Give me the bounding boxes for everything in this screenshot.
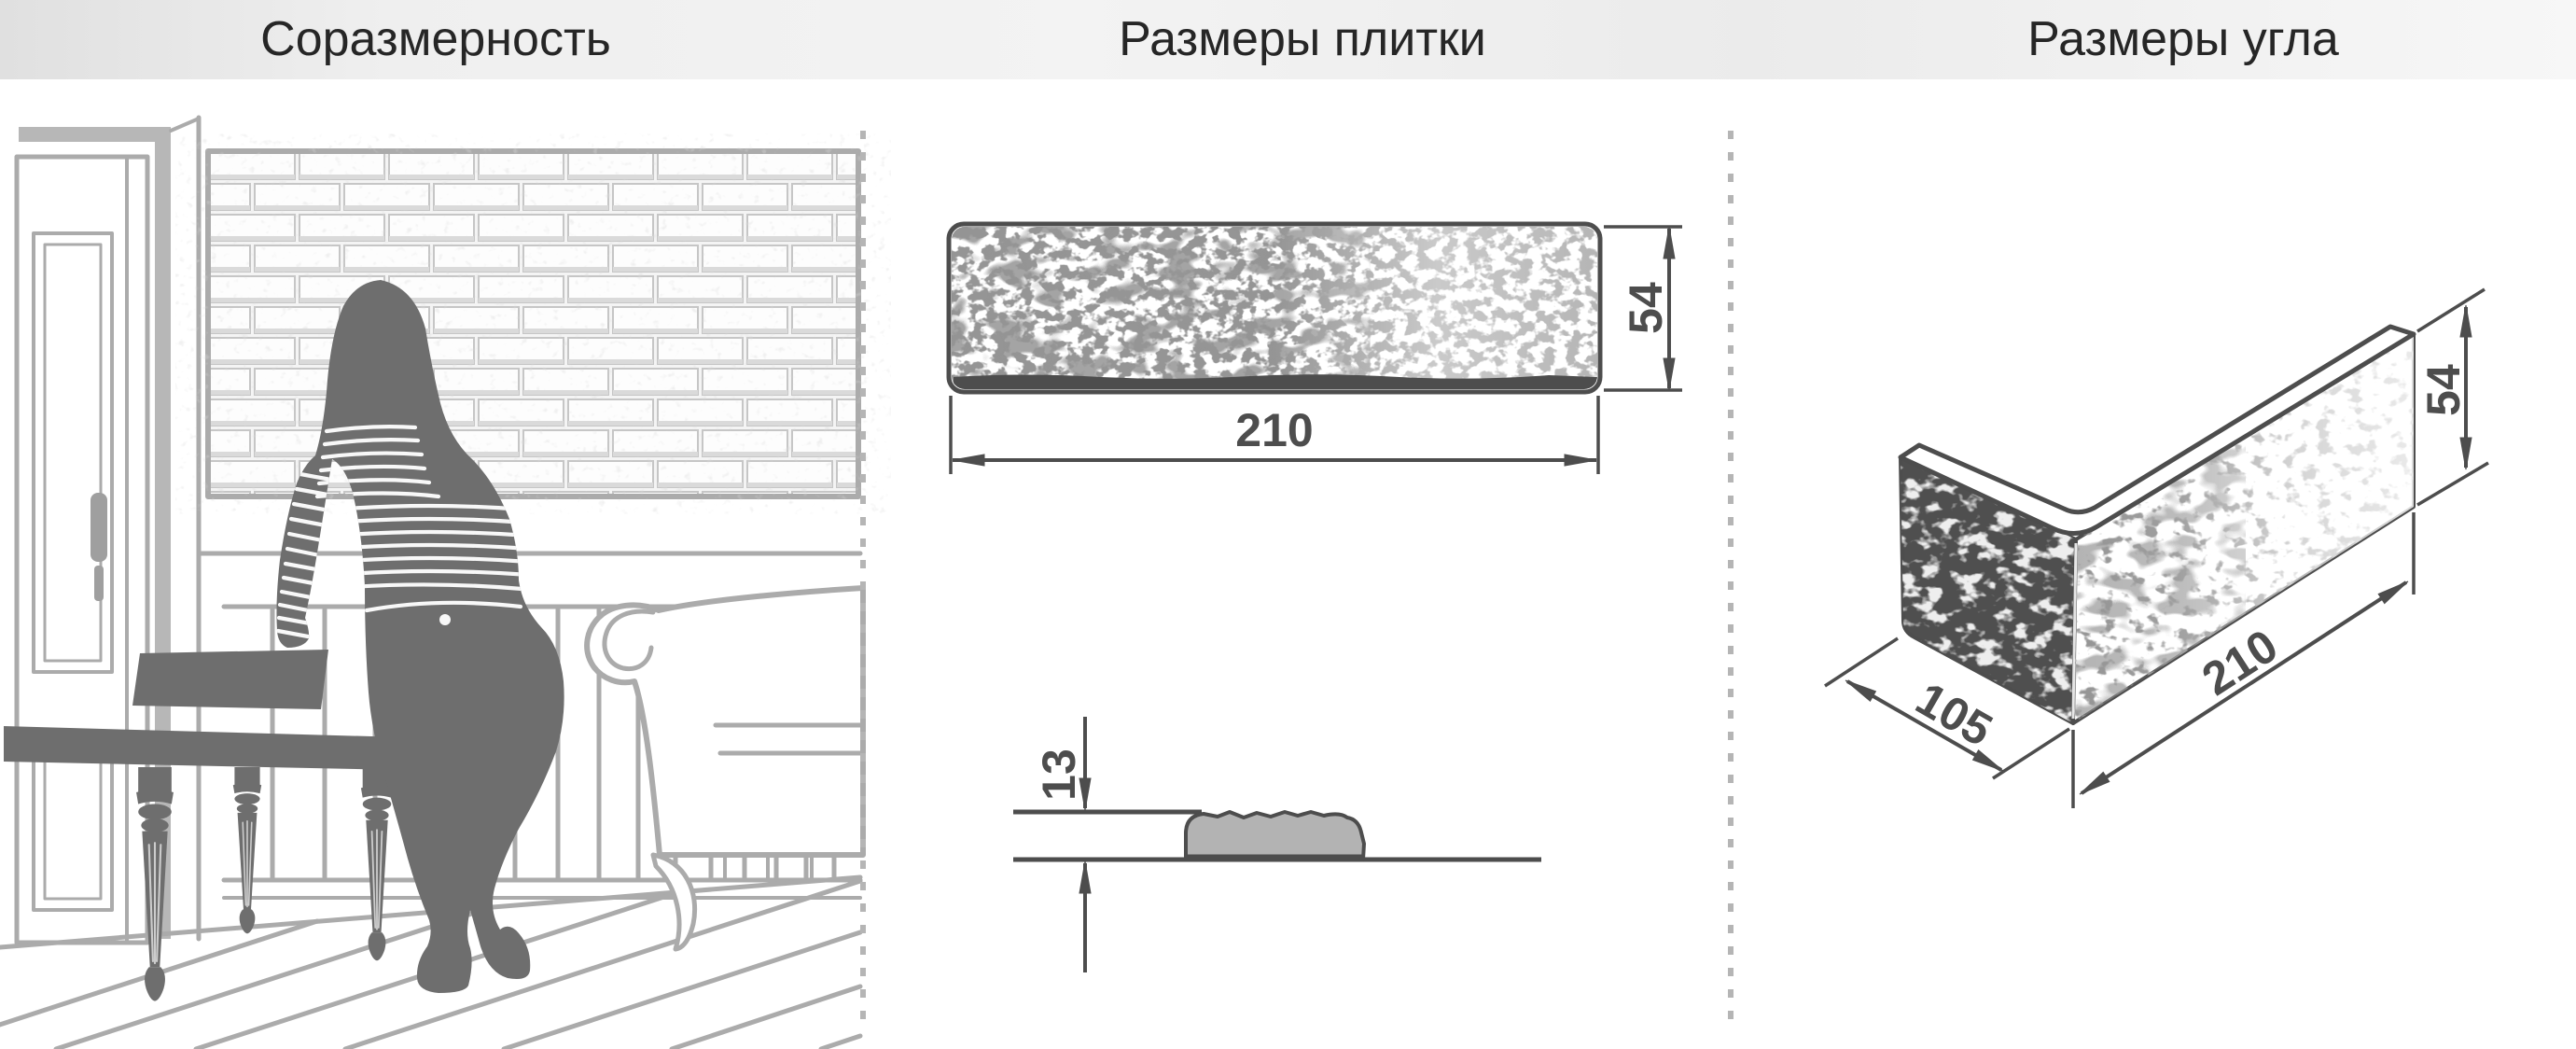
corner-isometric-view (1894, 327, 2419, 728)
tile-height-value: 54 (1620, 282, 1672, 334)
corner-short-side-value: 105 (1907, 672, 2000, 756)
door (17, 118, 199, 943)
tile-length-value: 210 (1235, 404, 1313, 456)
figure-canvas: 210 54 13 105 210 54 (0, 0, 2576, 1049)
proportionality-illustration (0, 118, 863, 1049)
laptop (132, 650, 328, 709)
product-dimensions-figure: Соразмерность Размеры плитки Размеры угл… (0, 0, 2576, 1049)
corner-height-value: 54 (2417, 364, 2470, 416)
tile-thickness-value: 13 (1033, 748, 1085, 801)
brick-wall-panel (208, 151, 858, 497)
tile-profile-view (1013, 717, 1541, 972)
tile-face-view (949, 224, 1600, 392)
